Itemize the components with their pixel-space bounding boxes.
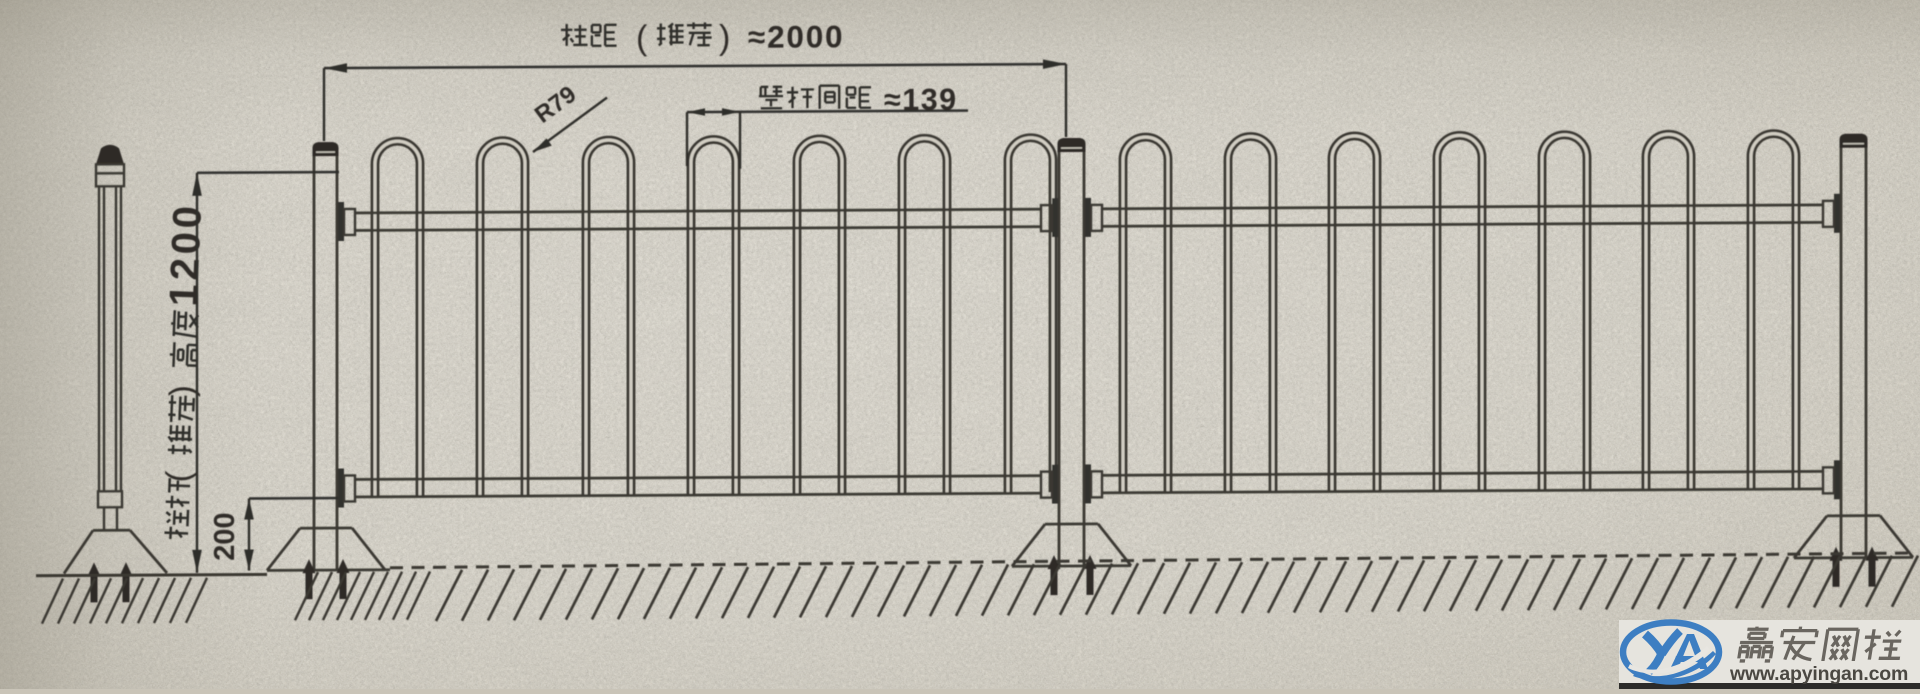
svg-text:≈2000: ≈2000 [748,18,844,55]
svg-text:www.apyingan.com: www.apyingan.com [1729,663,1908,685]
svg-text:1200: 1200 [162,201,210,307]
svg-text:(: ( [159,470,197,483]
svg-text:≈139: ≈139 [884,83,958,117]
svg-text:200: 200 [209,512,241,561]
svg-text:(: ( [636,19,648,57]
svg-text:): ) [719,19,730,57]
svg-text:): ) [163,384,201,397]
